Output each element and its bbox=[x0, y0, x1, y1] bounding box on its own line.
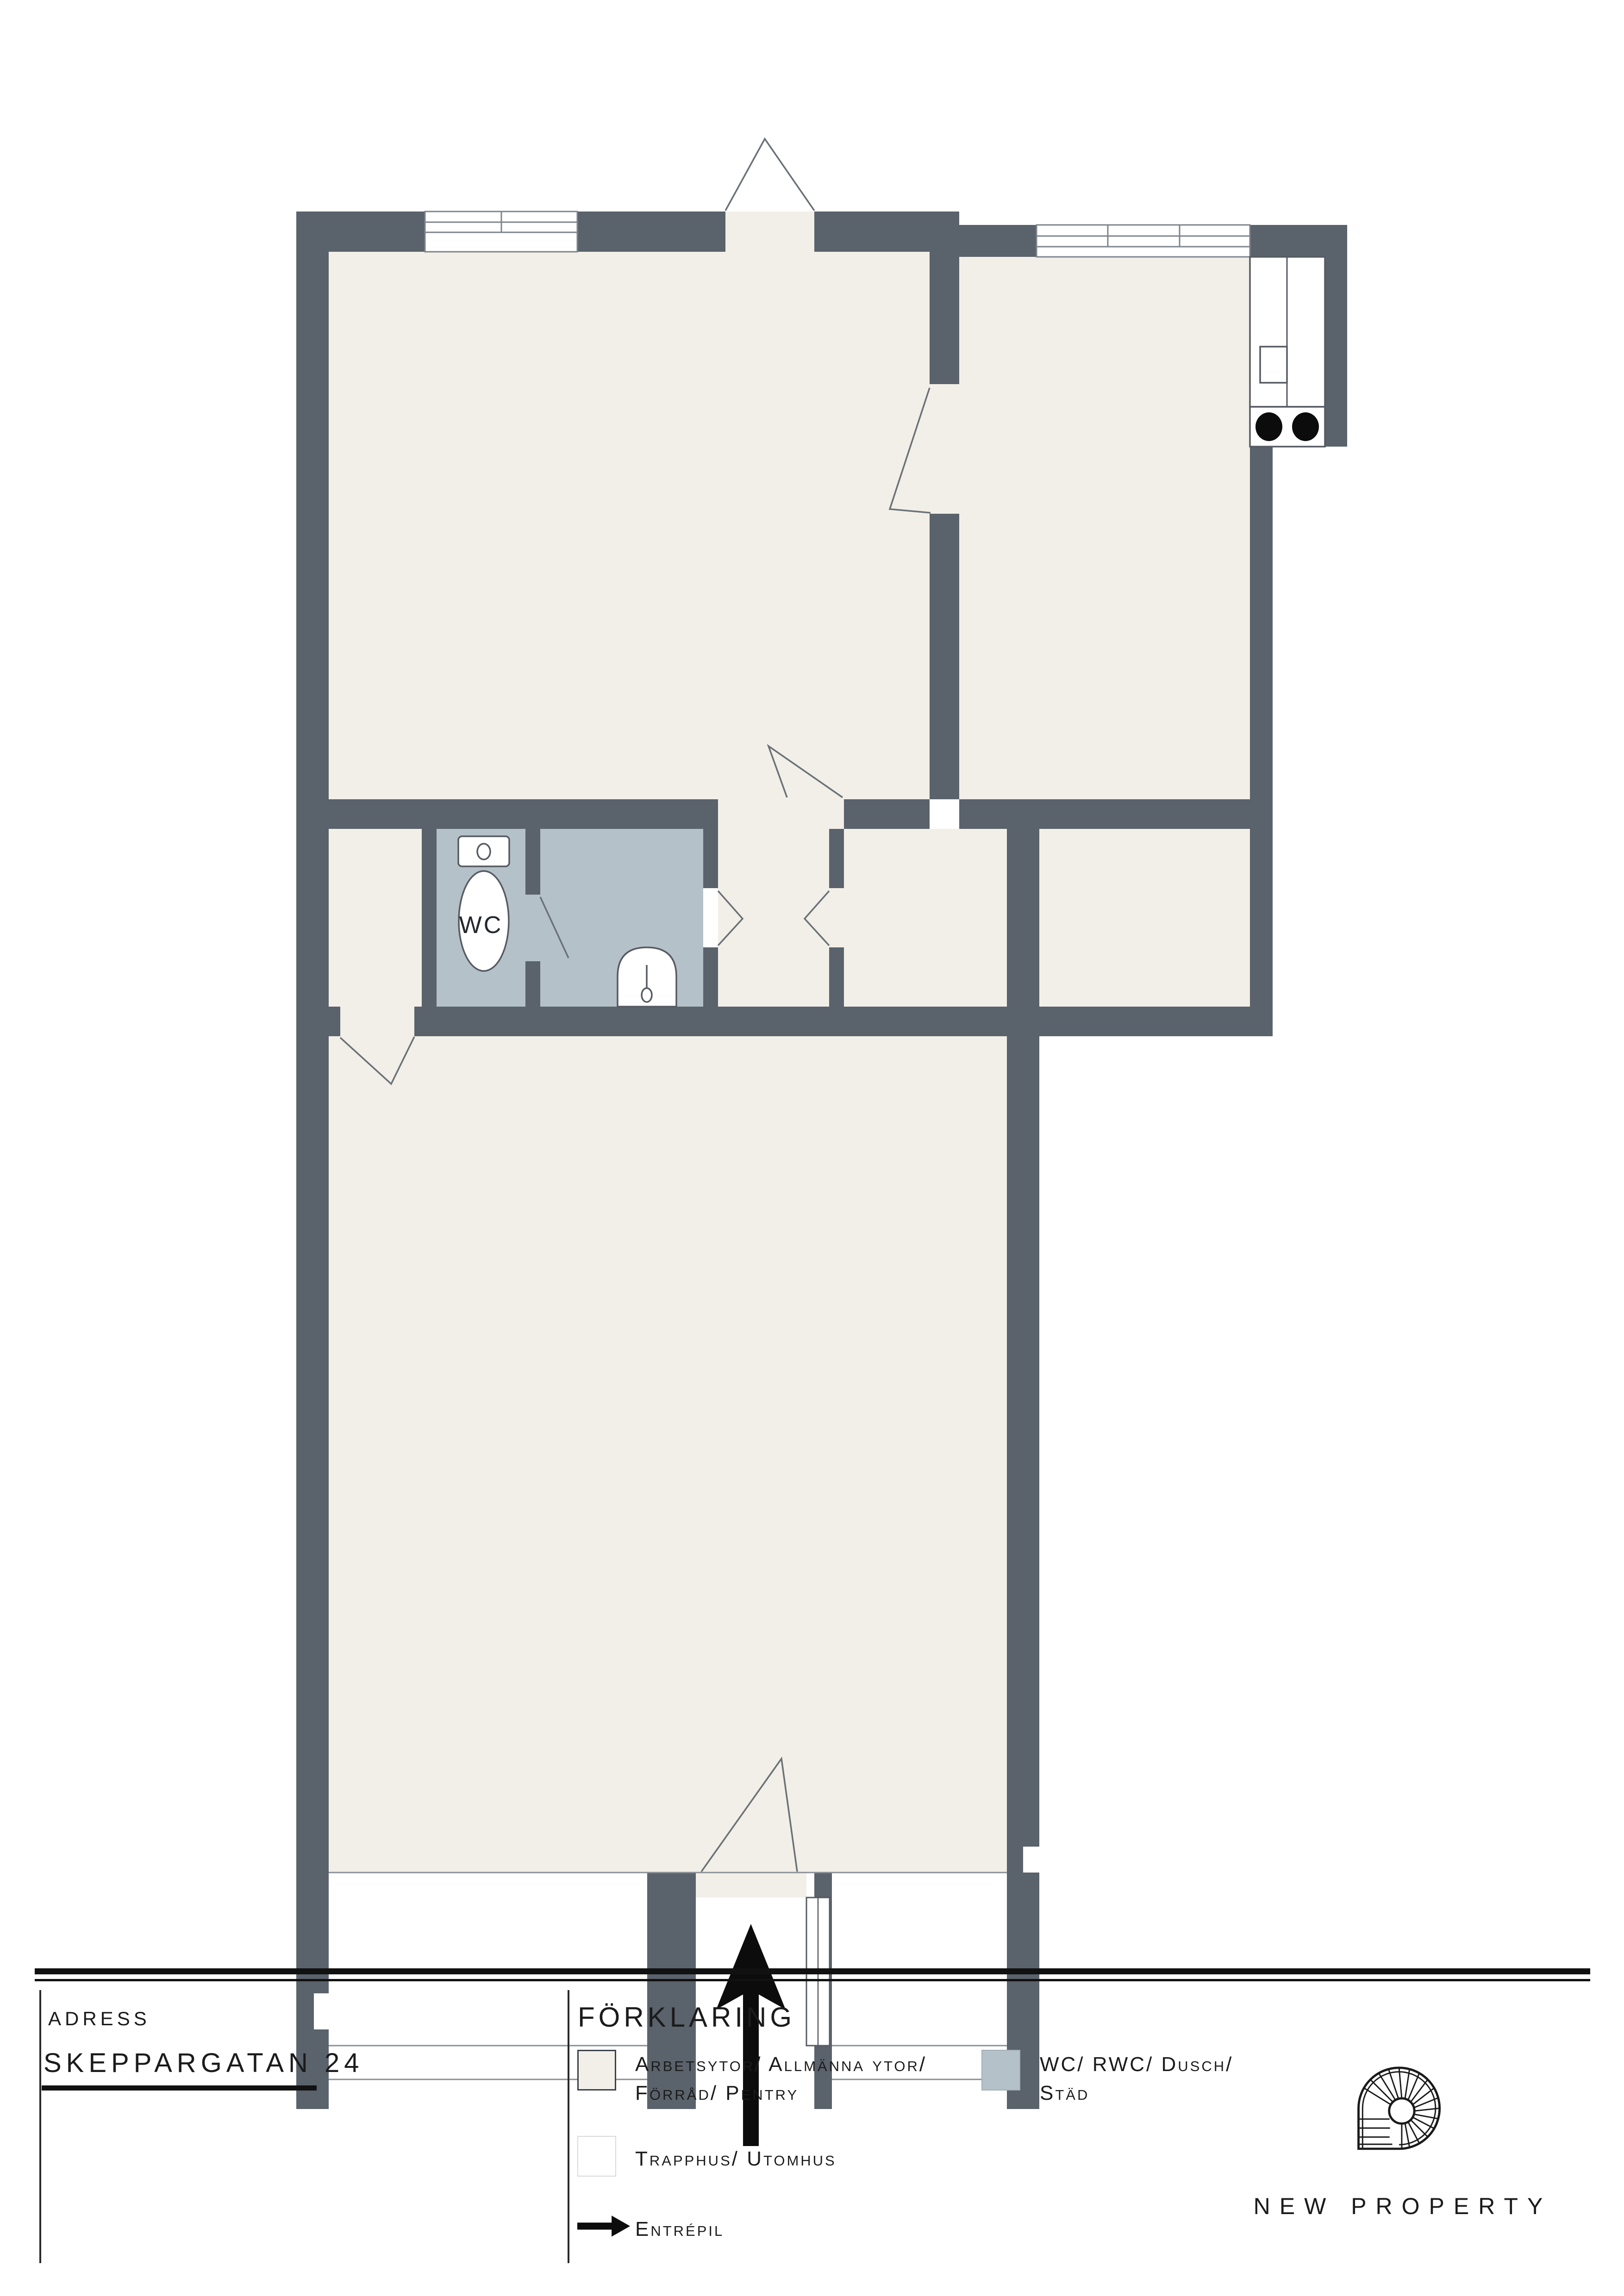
legend-swatch-wet-rooms bbox=[981, 2050, 1020, 2091]
kitchen-floor bbox=[959, 257, 1250, 799]
legend-title: FÖRKLARING bbox=[578, 2001, 795, 2033]
vestibule-floor bbox=[844, 829, 1007, 1007]
address-underline bbox=[42, 2085, 317, 2091]
wc-label: WC bbox=[459, 912, 503, 939]
spiral-staircase-icon bbox=[1351, 2064, 1450, 2163]
wall-notch-right bbox=[1023, 1847, 1039, 1873]
floor-plan-sheet: WC ADRESS SKEPPARGATAN 24 FÖRKLA bbox=[0, 0, 1624, 2296]
hall-neck-floor bbox=[718, 799, 829, 1007]
entrance-threshold bbox=[696, 1873, 806, 1898]
address-column-rule bbox=[39, 1990, 41, 2263]
wall-notch-left bbox=[314, 1993, 329, 2029]
brand-name: NEW PROPERTY bbox=[1245, 2193, 1560, 2220]
top-door-threshold bbox=[725, 212, 814, 252]
vestibule-left-door-gap bbox=[829, 888, 844, 947]
hall-east-floor bbox=[1037, 829, 1250, 1007]
toilet-icon bbox=[458, 836, 509, 971]
legend-label-entrance-arrow: Entrépil bbox=[635, 2215, 724, 2244]
footer-rule-thin bbox=[35, 1979, 1590, 1981]
footer-rule-thick bbox=[35, 1968, 1590, 1974]
legend-label-stairwell-outdoor: Trapphus/ Utomhus bbox=[635, 2145, 837, 2173]
vestibule-top-door-gap bbox=[785, 799, 844, 829]
window-top-left bbox=[425, 212, 577, 252]
legend-swatch-stairwell-outdoor bbox=[577, 2136, 616, 2177]
corridor-floor bbox=[329, 829, 422, 1007]
burner-icon bbox=[1255, 412, 1282, 441]
burner-icon bbox=[1292, 412, 1319, 441]
entrance-arrow-legend-icon bbox=[577, 2213, 630, 2239]
address-value: SKEPPARGATAN 24 bbox=[44, 2047, 364, 2078]
floor-areas bbox=[329, 212, 1250, 1873]
door-swing-top-entrance bbox=[725, 139, 814, 211]
kitchen-fixtures bbox=[1250, 257, 1325, 447]
room-lower-floor bbox=[329, 1036, 1007, 1873]
floor-plan: WC bbox=[0, 0, 1624, 2296]
address-label: ADRESS bbox=[48, 2008, 150, 2030]
window-kitchen bbox=[1037, 225, 1250, 257]
legend-label-work-areas: Arbetsytor/ Allmänna ytor/ Förråd/ Pentr… bbox=[635, 2050, 927, 2108]
legend-column-rule bbox=[568, 1990, 569, 2263]
room-top-left-floor bbox=[329, 252, 930, 799]
kitchen-door-gap bbox=[930, 384, 959, 514]
corridor-door-gap bbox=[340, 1007, 414, 1036]
legend-label-wet-rooms: WC/ RWC/ Dusch/ Städ bbox=[1040, 2050, 1233, 2108]
legend-swatch-work-areas bbox=[577, 2050, 616, 2091]
washbasin-icon bbox=[618, 947, 676, 1007]
kitchen-sink-icon bbox=[1260, 347, 1287, 383]
